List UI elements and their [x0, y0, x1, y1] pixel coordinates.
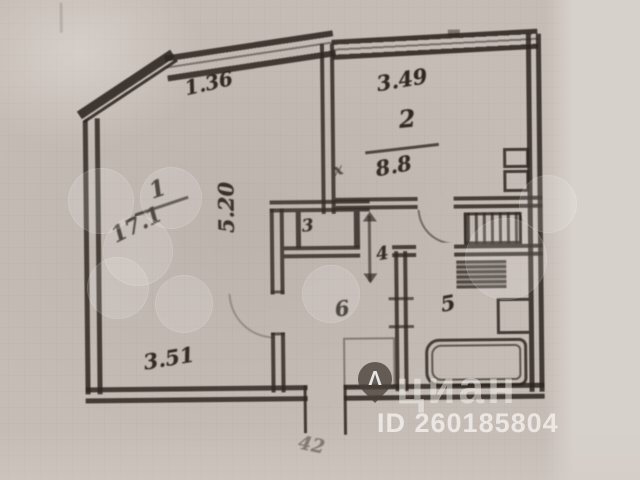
- watermark-circle: [302, 265, 360, 323]
- watermark-layer: Λ циан ID 260185804: [0, 0, 640, 480]
- floor-plan-photo: 1.36 3.49 2 8.8 х 5.20 1 17.1 3.51 3 4 6…: [0, 0, 640, 480]
- watermark-circle: [465, 218, 547, 300]
- cian-pin-glyph: Λ: [364, 368, 386, 390]
- watermark-circle: [155, 275, 213, 333]
- cian-pin-icon: Λ: [351, 355, 399, 403]
- watermark-brand: циан: [396, 364, 518, 410]
- watermark-circle: [87, 257, 149, 319]
- watermark-listing-id: ID 260185804: [377, 410, 559, 437]
